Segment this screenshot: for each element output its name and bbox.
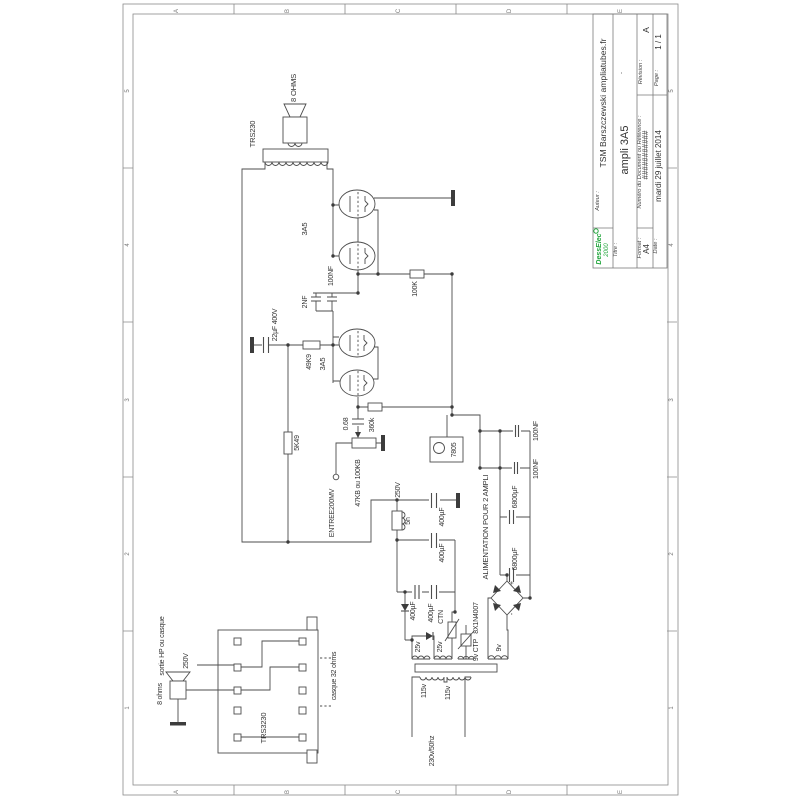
- jack-pin: [299, 687, 306, 694]
- casque-label: casque 32 ohms: [331, 651, 338, 700]
- cap-100nf-label: 100NF: [533, 459, 540, 479]
- auteur-value: TSM Barszczewski ampliatubes.fr: [598, 38, 608, 167]
- tube-v2a: [339, 329, 375, 357]
- jack-block-tab: [307, 617, 317, 630]
- cap-100nf-label: 100NF: [533, 421, 540, 441]
- hv-left-label: 250V: [183, 653, 190, 669]
- tube-label: 3A5: [318, 358, 327, 371]
- hv-label: 250V: [395, 482, 402, 498]
- jack-pin: [299, 707, 306, 714]
- cap-2nf-label: 2NF: [302, 296, 309, 309]
- winding-25v-label: 25v: [415, 641, 422, 652]
- input-terminal: [333, 474, 339, 480]
- zone-col-top: B: [285, 9, 291, 13]
- ground-icon: [456, 493, 460, 508]
- resistor-5k49: [284, 432, 292, 454]
- jack-block-tab: [307, 750, 317, 763]
- winding-25v-label: 25v: [437, 641, 444, 652]
- tube-v1b: [339, 242, 375, 270]
- cap-400uf-label: 400µF: [428, 604, 435, 623]
- output-transformer-label: TRS230: [248, 121, 257, 148]
- cap-6800uf-label: 6800µF: [512, 548, 519, 571]
- resistor-100k-label: 100K: [412, 281, 419, 297]
- jack-pin: [234, 638, 241, 645]
- cap-100nf-label: 100NF: [328, 266, 335, 286]
- bridge-plus-label: +: [509, 581, 516, 585]
- output-transformer-core: [263, 149, 328, 162]
- pot-label: 47KB ou 100KB: [355, 459, 362, 507]
- titre-note: .: [615, 72, 624, 74]
- winding-115v-label: 115v: [445, 685, 452, 700]
- ground-icon: [170, 722, 186, 726]
- date-value: mardi 29 juillet 2014: [654, 130, 663, 202]
- ground-icon: [451, 190, 455, 206]
- speaker-body: [170, 681, 186, 699]
- numero-value: ###########: [641, 130, 650, 179]
- revision-value: A: [641, 27, 651, 33]
- ground-icon: [250, 337, 254, 353]
- tube-label: 3A5: [300, 223, 309, 236]
- speaker-impedance-label: 8 OHMS: [289, 74, 298, 102]
- jack-pin: [299, 638, 306, 645]
- jack-pin: [234, 687, 241, 694]
- sortie-label: sortie HP ou casque: [159, 616, 166, 675]
- mains-label: 230v/50hz: [429, 735, 436, 766]
- logo-text: DessElec: [596, 233, 603, 264]
- resistor-360k: [368, 403, 382, 411]
- cap-22uf-label: 22µF 400V: [272, 308, 279, 341]
- zone-col-top: C: [396, 8, 402, 13]
- resistor-5k49-label: 5K49: [294, 435, 301, 451]
- zone-col-bottom: C: [396, 789, 402, 794]
- cap-6800uf-label: 6800µF: [512, 486, 519, 509]
- zone-col-bottom: B: [285, 790, 291, 794]
- resistor-100k: [410, 270, 424, 278]
- speaker-body: [283, 117, 307, 143]
- mains-transformer-core: [415, 664, 497, 672]
- resistor-360k-label: 360k: [369, 417, 376, 432]
- zone-col-bottom: D: [507, 789, 513, 794]
- cap-400uf-label: 400µF: [410, 602, 417, 621]
- zone-col-top: D: [507, 8, 513, 13]
- format-value: A4: [642, 244, 651, 254]
- resistor-49k9: [303, 341, 320, 349]
- cap-400uf-label: 400µF: [439, 508, 446, 527]
- winding-115v-label: 115v: [421, 683, 428, 698]
- zone-col-bottom: A: [174, 790, 180, 794]
- titre-label: Titre :: [613, 242, 619, 257]
- jack-pin: [299, 664, 306, 671]
- potentiometer: [352, 438, 376, 448]
- alim-label: ALIMENTATION POUR 2 AMPLI: [481, 474, 490, 579]
- regulator-mount-hole: [434, 443, 445, 454]
- schematic-sheet: A B C D E A B C D E 5 4 3 2 1 5 4 3 2 1 …: [0, 0, 800, 800]
- zone-col-bottom: E: [618, 790, 624, 794]
- zone-col-top: E: [618, 9, 624, 13]
- logo-text-year: 2000: [604, 243, 610, 258]
- jack-pin: [234, 707, 241, 714]
- input-label: ENTREE200MV: [329, 488, 336, 537]
- regulator-label: 7805: [451, 442, 458, 457]
- speaker-left-label: 8 ohms: [157, 682, 164, 704]
- date-label: Date :: [653, 238, 659, 253]
- diodes-label: 8X1N4007: [473, 602, 480, 634]
- revision-label: Révision :: [638, 59, 644, 84]
- resistor-49k9-label: 49K9: [306, 354, 313, 370]
- cap-400uf-label: 400µF: [439, 544, 446, 563]
- page-label: Page :: [654, 69, 660, 86]
- cap-068-label: 0.68: [343, 417, 350, 430]
- choke: [392, 511, 402, 530]
- auteur-label: Auteur :: [595, 191, 601, 212]
- titre-value: ampli 3A5: [619, 126, 631, 175]
- zone-col-top: A: [174, 9, 180, 13]
- page-value: 1 / 1: [654, 34, 663, 50]
- jack-pin: [234, 734, 241, 741]
- sheet-background: [0, 0, 800, 800]
- jack-pin: [234, 664, 241, 671]
- tube-v1a: [339, 190, 375, 218]
- ground-icon: [381, 435, 385, 451]
- jack-block-label: TRS3230: [259, 713, 268, 744]
- winding-9v-label: 9v: [496, 644, 503, 652]
- choke-label: 5h: [405, 517, 412, 525]
- jack-pin: [299, 734, 306, 741]
- ctn-label: CTN: [438, 610, 445, 624]
